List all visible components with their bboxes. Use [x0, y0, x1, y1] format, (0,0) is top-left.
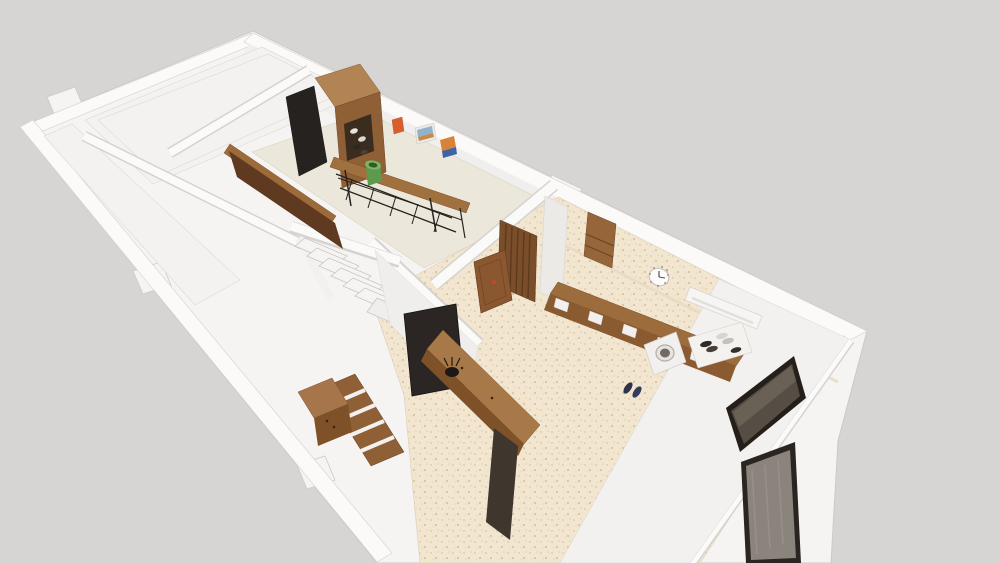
clock-tick-8	[666, 269, 668, 271]
interior-door-knob	[492, 280, 496, 284]
low-cabinet-knob-1	[326, 420, 329, 423]
low-cabinet-knob-2	[333, 426, 336, 429]
wall-poster-small-red	[392, 117, 404, 134]
clock-tick-2	[664, 282, 666, 284]
clock-tick-3	[657, 285, 659, 287]
console-plant-decor	[445, 367, 459, 377]
floorplan-3d-render	[0, 0, 1000, 563]
clock-tick-6	[653, 267, 655, 269]
clock-tick-1	[667, 274, 669, 276]
tv-console-knob-1	[461, 367, 464, 370]
clock-tick-7	[661, 266, 663, 268]
appliance-door-glass	[660, 349, 670, 358]
render-viewport	[0, 0, 1000, 563]
shape-layer	[0, 0, 1000, 563]
clock-tick-4	[650, 281, 652, 283]
tv-console-knob-2	[491, 397, 494, 400]
clock-tick-5	[649, 273, 651, 275]
